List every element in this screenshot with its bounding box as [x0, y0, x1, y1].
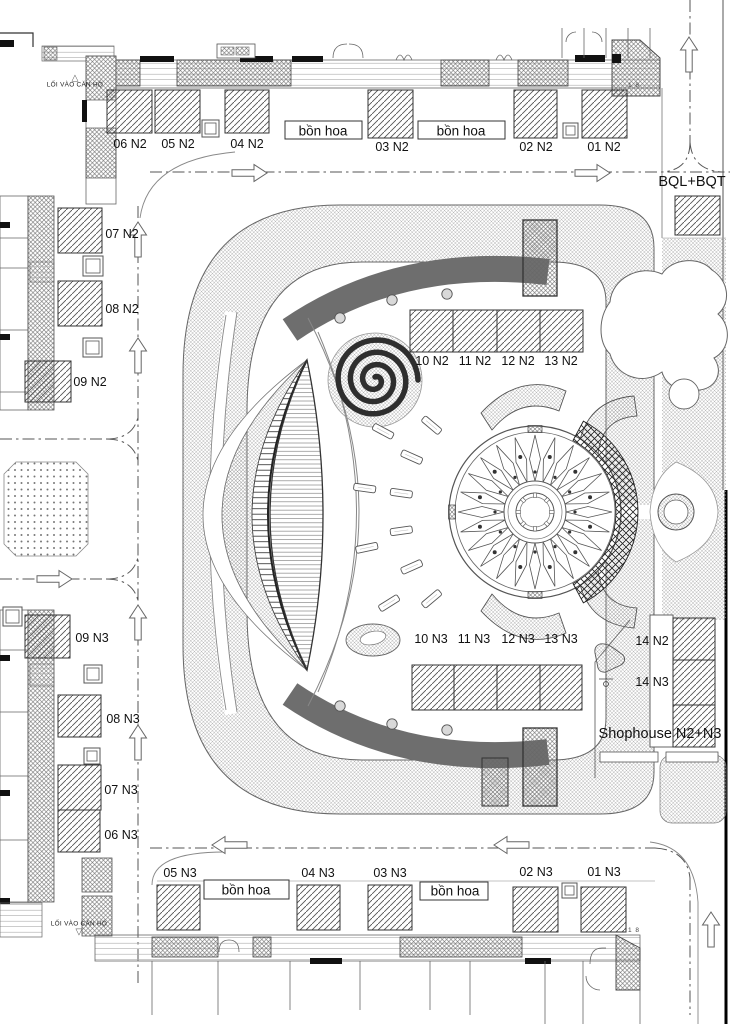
planter-box: [84, 748, 100, 764]
oval-pond: [346, 624, 400, 656]
bollard: [442, 289, 452, 299]
flower-bed-box: [418, 121, 505, 139]
shophouse-tree-column: [673, 618, 715, 747]
site-plan-drawing: [0, 0, 730, 1024]
tree-square: [582, 90, 627, 138]
tree-square: [155, 90, 200, 133]
green-corner-bottom-right: [660, 755, 726, 823]
tree-square: [58, 281, 102, 326]
bollard: [387, 295, 397, 305]
tree-square: [368, 885, 412, 930]
tree-square: [25, 615, 70, 658]
tree-square: [581, 887, 626, 932]
flower-bed-box: [285, 121, 362, 139]
flower-bed-box: [420, 882, 488, 900]
site-plan-canvas: 06 N205 N204 N203 N202 N201 N207 N208 N2…: [0, 0, 730, 1024]
planter-box: [563, 123, 578, 138]
tree-square: [297, 885, 340, 930]
tree-square: [513, 887, 558, 932]
tree-square: [675, 196, 720, 235]
bollard: [387, 719, 397, 729]
tree-square: [25, 361, 71, 402]
tree-square: [107, 90, 152, 133]
shophouse-label-strip: [650, 615, 673, 747]
planter-box: [202, 120, 219, 137]
tree-square: [225, 90, 269, 133]
flower-bed-box: [204, 880, 289, 899]
tree-square: [157, 885, 200, 930]
bollard: [442, 725, 452, 735]
paved-plaza-left: [4, 462, 88, 556]
tree-square: [368, 90, 413, 138]
tree-square: [58, 695, 101, 737]
bollard: [335, 701, 345, 711]
central-plaza-mandala: [449, 421, 638, 603]
tree-square: [58, 208, 102, 253]
tree-square: [58, 765, 101, 810]
spiral-feature: [328, 333, 422, 427]
planter-box: [562, 883, 577, 898]
tree-square: [58, 810, 100, 852]
tree-square: [514, 90, 557, 138]
bollard: [335, 313, 345, 323]
